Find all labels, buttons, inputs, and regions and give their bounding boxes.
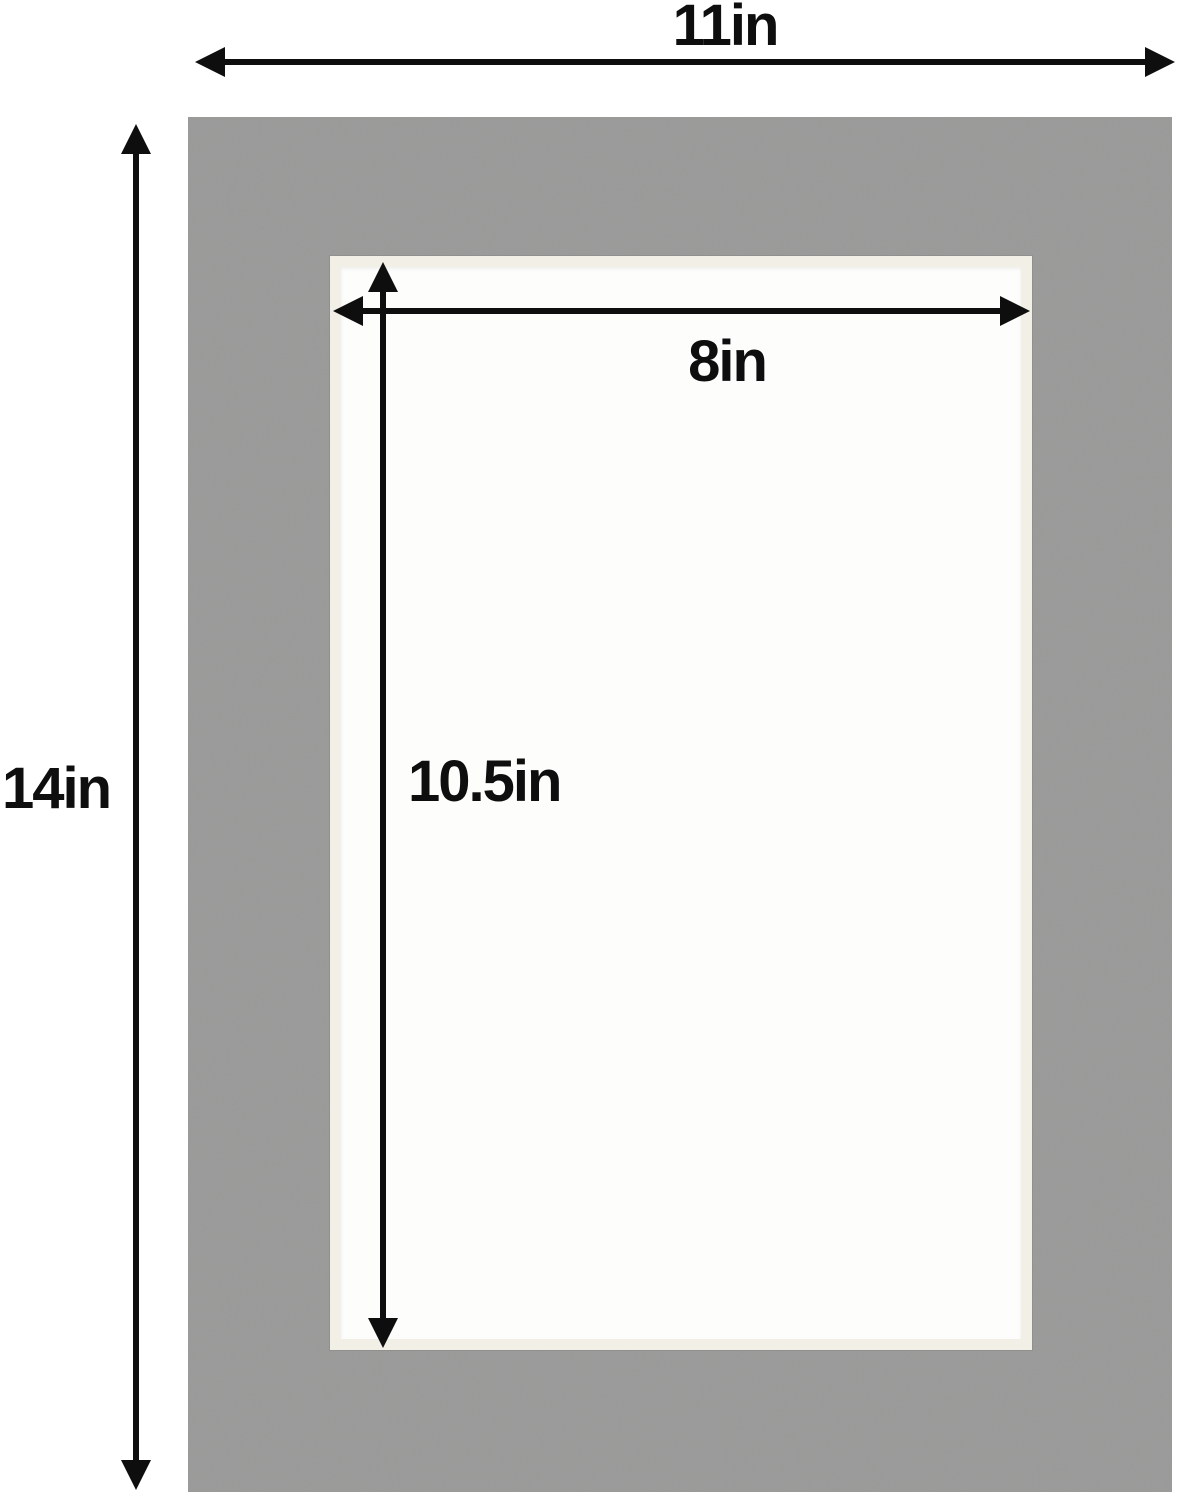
opening-height-label: 10.5in bbox=[408, 753, 638, 811]
arrowhead-down-icon bbox=[368, 1318, 398, 1348]
opening-width-arrow bbox=[333, 296, 1030, 326]
arrow-shaft bbox=[357, 308, 1006, 314]
opening-height-arrow bbox=[368, 262, 398, 1348]
outer-width-arrow bbox=[195, 47, 1175, 77]
arrowhead-right-icon bbox=[1000, 296, 1030, 326]
opening-width-label: 8in bbox=[597, 333, 857, 391]
arrowhead-down-icon bbox=[121, 1460, 151, 1490]
arrowhead-right-icon bbox=[1145, 47, 1175, 77]
arrow-shaft bbox=[219, 59, 1151, 65]
arrow-shaft bbox=[380, 286, 386, 1324]
mat-dimension-diagram: 11in 14in 8in 10.5in bbox=[0, 0, 1185, 1500]
arrow-shaft bbox=[133, 148, 139, 1466]
outer-height-arrow bbox=[121, 124, 151, 1490]
